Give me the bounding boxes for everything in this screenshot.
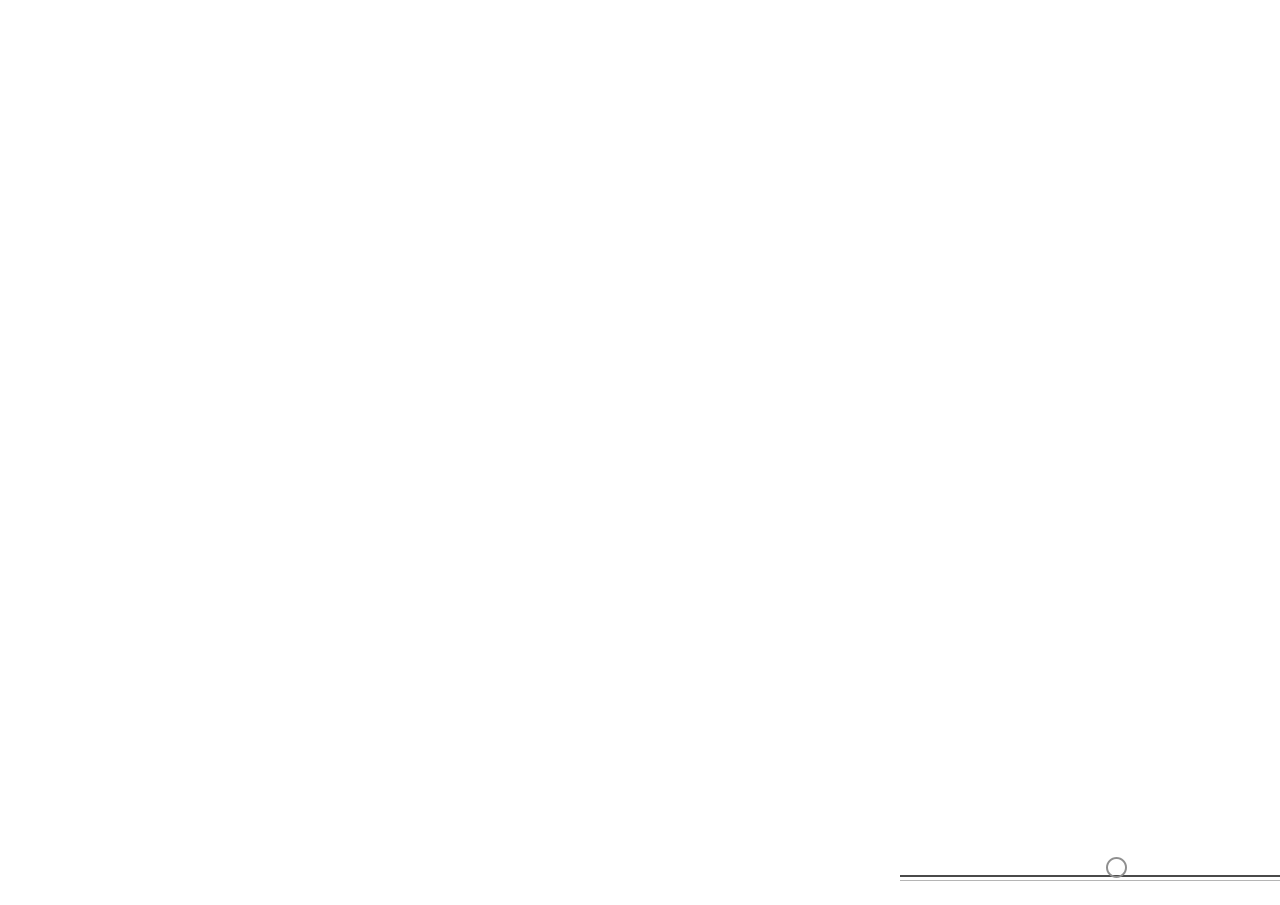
title-rule (900, 875, 1280, 881)
client-project-info (1207, 860, 1233, 873)
studio-logo (1106, 857, 1131, 878)
date-scale-info (1207, 885, 1233, 898)
master-plan-sheet: { "watermark": "Housley.com", "main_road… (0, 0, 1280, 905)
site-plan-drawing (0, 0, 1280, 710)
studio-logo-icon (1106, 857, 1127, 878)
site-plan (0, 0, 1280, 710)
